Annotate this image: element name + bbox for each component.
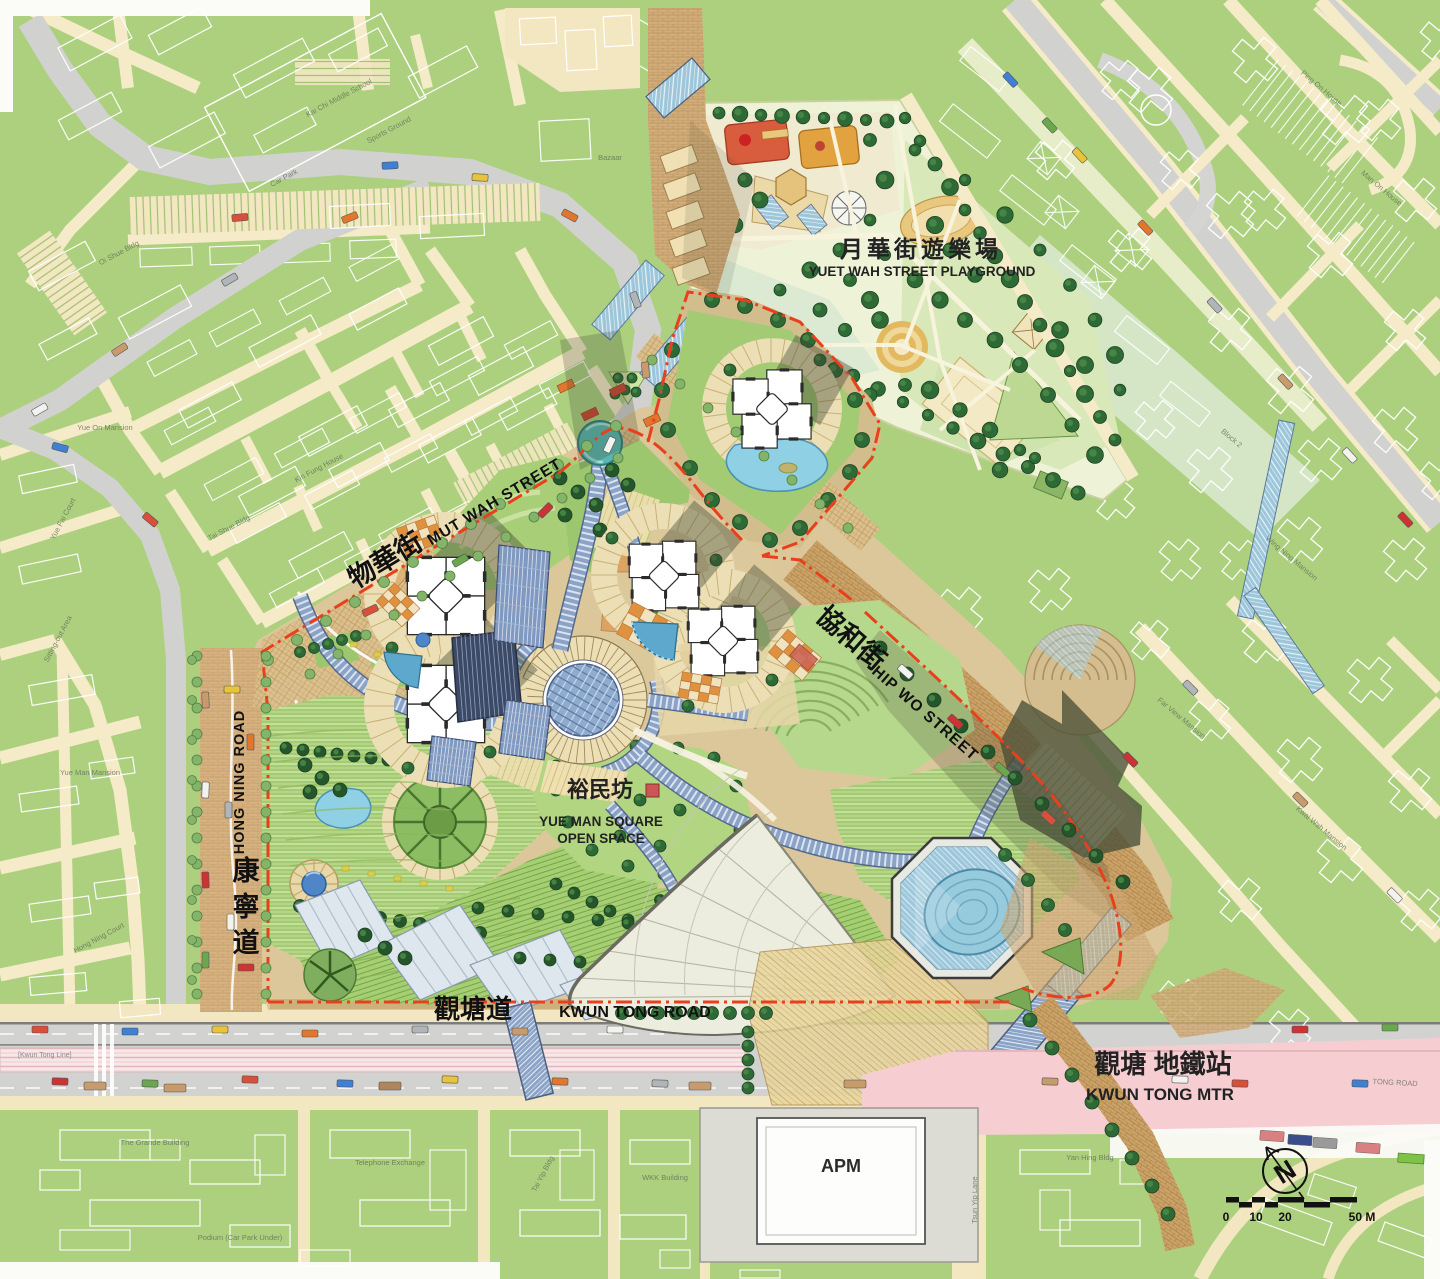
svg-text:裕民坊: 裕民坊: [567, 777, 633, 802]
svg-text:Bazaar: Bazaar: [598, 153, 622, 162]
svg-text:YUE MAN SQUARE: YUE MAN SQUARE: [539, 814, 663, 829]
svg-text:OPEN SPACE: OPEN SPACE: [557, 831, 645, 846]
svg-text:The Grande Building: The Grande Building: [121, 1138, 190, 1147]
svg-text:Podium (Car Park Under): Podium (Car Park Under): [198, 1233, 283, 1242]
svg-text:寧: 寧: [233, 891, 260, 922]
svg-text:Tsun Yip Lane: Tsun Yip Lane: [970, 1176, 979, 1223]
svg-text:WKK Building: WKK Building: [642, 1173, 688, 1182]
svg-text:Yue On Mansion: Yue On Mansion: [77, 423, 132, 432]
svg-text:觀塘 地鐵站: 觀塘 地鐵站: [1094, 1049, 1231, 1079]
svg-text:道: 道: [233, 927, 260, 958]
svg-text:Telephone Exchange: Telephone Exchange: [355, 1158, 425, 1167]
svg-text:Yue Man Mansion: Yue Man Mansion: [60, 768, 120, 777]
svg-text:20: 20: [1278, 1210, 1292, 1224]
svg-text:YUET WAH STREET PLAYGROUND: YUET WAH STREET PLAYGROUND: [809, 264, 1036, 279]
svg-text:KWUN TONG ROAD: KWUN TONG ROAD: [559, 1004, 711, 1021]
svg-text:觀塘道: 觀塘道: [434, 994, 512, 1024]
svg-text:APM: APM: [821, 1156, 861, 1176]
svg-text:10: 10: [1249, 1210, 1263, 1224]
svg-text:HONG NING ROAD: HONG NING ROAD: [232, 710, 248, 855]
svg-text:0: 0: [1223, 1210, 1230, 1224]
svg-text:KWUN TONG MTR: KWUN TONG MTR: [1086, 1085, 1234, 1104]
svg-text:康: 康: [233, 855, 261, 886]
svg-text:Yan Hing Bldg: Yan Hing Bldg: [1066, 1153, 1113, 1162]
svg-text:月華街遊樂場: 月華街遊樂場: [839, 236, 1002, 262]
svg-text:[Kwun Tong Line]: [Kwun Tong Line]: [18, 1052, 72, 1059]
svg-text:50 M: 50 M: [1349, 1210, 1376, 1224]
